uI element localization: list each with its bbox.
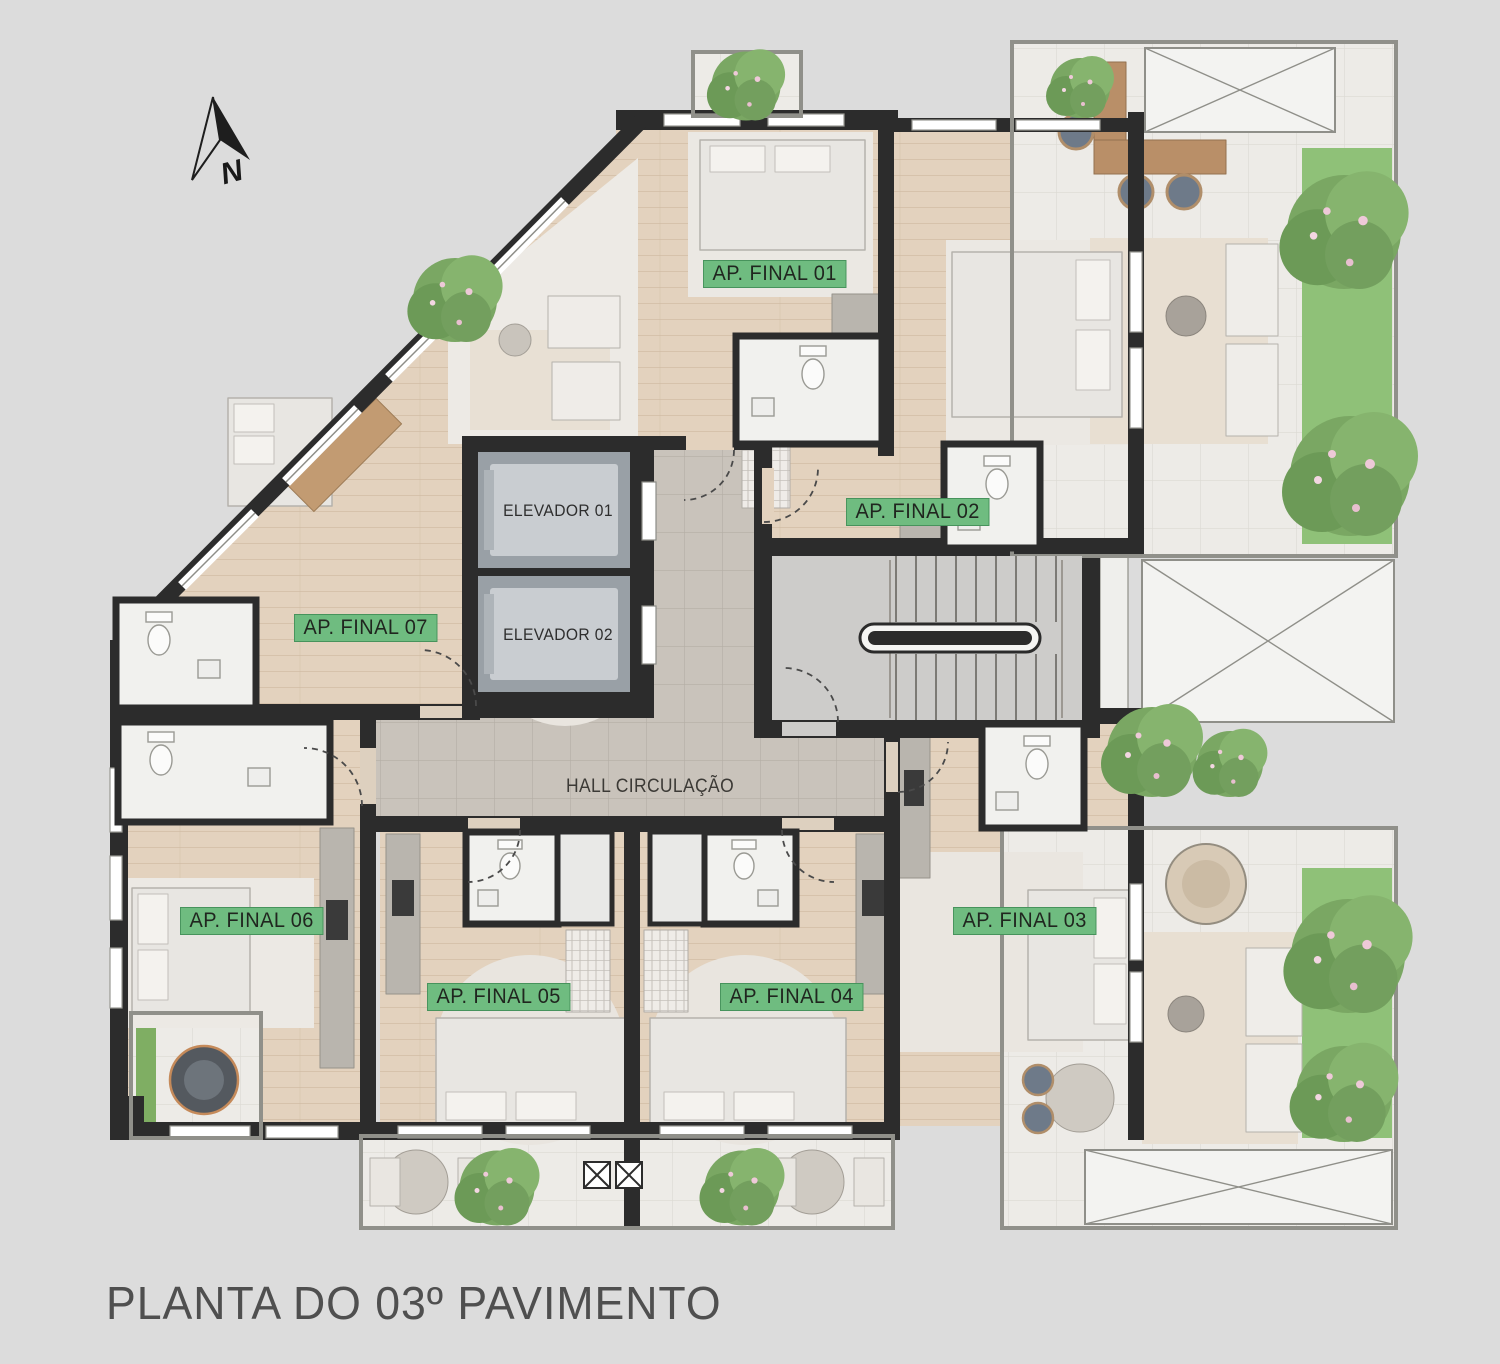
wardrobe — [644, 930, 688, 1012]
round-table — [1046, 1064, 1114, 1132]
elevator-door — [642, 606, 656, 664]
shower — [558, 832, 612, 924]
side-table — [1168, 996, 1204, 1032]
kitchen-ap01 — [832, 294, 884, 334]
x-opening-top — [1145, 48, 1335, 132]
apartment-label-final-06: AP. FINAL 06 — [180, 907, 323, 935]
sink — [752, 398, 774, 416]
apartment-label-final-07: AP. FINAL 07 — [294, 614, 437, 642]
toilet — [1024, 736, 1050, 779]
apartment-label-final-05: AP. FINAL 05 — [427, 983, 570, 1011]
apartment-label-final-03: AP. FINAL 03 — [953, 907, 1096, 935]
shower — [650, 832, 704, 924]
apartment-label-final-02: AP. FINAL 02 — [846, 498, 989, 526]
elevator-block — [462, 436, 656, 718]
sink — [478, 890, 498, 906]
floor-plan-drawing — [0, 0, 1500, 1364]
bath-ap07 — [116, 600, 256, 708]
toilet — [984, 456, 1010, 499]
hall-circulation-label: HALL CIRCULAÇÃO — [530, 776, 769, 798]
counter — [1094, 140, 1226, 174]
sofa — [1226, 244, 1278, 336]
x-opening-bottom — [1085, 1150, 1392, 1224]
sink — [758, 890, 778, 906]
apartment-label-final-04: AP. FINAL 04 — [720, 983, 863, 1011]
sofa — [1226, 344, 1278, 436]
kitchen-ap06 — [320, 828, 354, 1068]
sink — [248, 768, 270, 786]
floor-plan-page: N AP. FINAL 01 AP. FINAL 02 AP. FINAL 03… — [0, 0, 1500, 1364]
shaft — [1100, 556, 1128, 712]
page-title: PLANTA DO 03º PAVIMENTO — [106, 1276, 722, 1330]
sink — [996, 792, 1018, 810]
wardrobe — [566, 930, 610, 1012]
toilet — [148, 732, 174, 775]
elevator-02-label: ELEVADOR 02 — [477, 625, 639, 645]
sink — [198, 660, 220, 678]
elevator-01-label: ELEVADOR 01 — [477, 501, 639, 521]
apartment-label-final-01: AP. FINAL 01 — [703, 260, 846, 288]
x-opening-right — [1142, 560, 1394, 722]
palm — [1193, 729, 1268, 797]
toilet — [146, 612, 172, 655]
sofa — [548, 296, 620, 348]
stairwell — [772, 556, 1082, 720]
sofa — [552, 362, 620, 420]
toilet — [732, 840, 756, 879]
coffee-table — [499, 324, 531, 356]
toilet — [800, 346, 826, 389]
side-table — [1166, 296, 1206, 336]
elevator-door — [642, 482, 656, 540]
